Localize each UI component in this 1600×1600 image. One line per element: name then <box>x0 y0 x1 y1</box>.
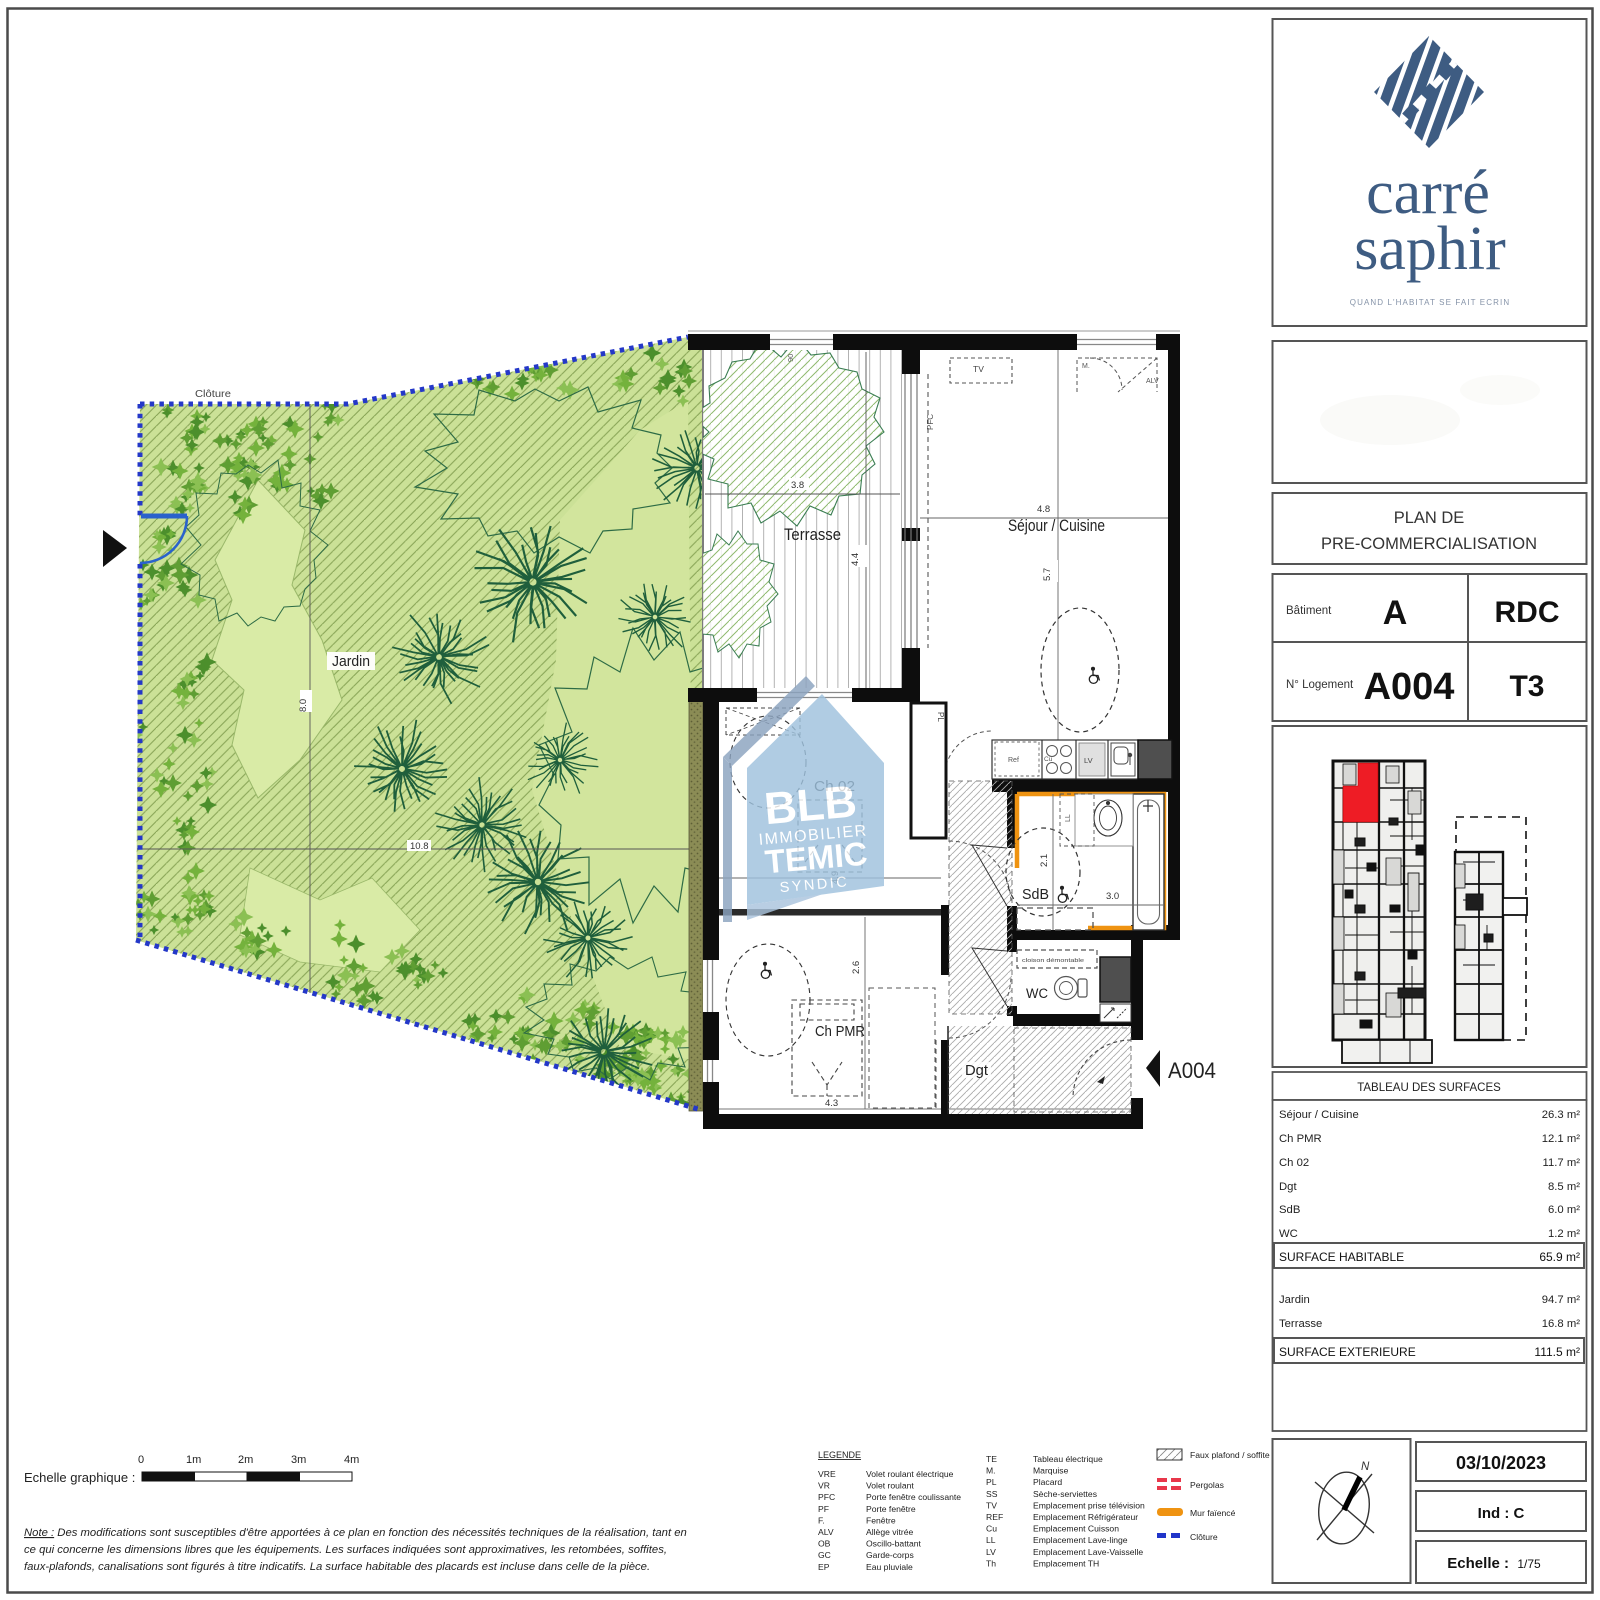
svg-text:4.3: 4.3 <box>825 1098 838 1109</box>
svg-text:8.0: 8.0 <box>298 699 309 712</box>
svg-text:4m: 4m <box>344 1454 359 1466</box>
svg-text:A004: A004 <box>1168 1058 1216 1083</box>
svg-text:saphir: saphir <box>1354 215 1506 283</box>
svg-text:cloison démontable: cloison démontable <box>1022 958 1084 964</box>
svg-text:6.0 m²: 6.0 m² <box>1548 1204 1580 1216</box>
svg-text:Dgt: Dgt <box>1279 1181 1297 1193</box>
svg-text:faux-plafonds, canalisations s: faux-plafonds, canalisations sont figuré… <box>24 1561 650 1573</box>
svg-text:Allège vitrée: Allège vitrée <box>866 1527 914 1537</box>
svg-text:Placard: Placard <box>1033 1477 1062 1487</box>
svg-text:4.4: 4.4 <box>850 553 861 566</box>
svg-text:Note : Des modifications sont: Note : Des modifications sont susceptibl… <box>24 1527 687 1539</box>
svg-text:Terrasse: Terrasse <box>784 525 841 544</box>
svg-text:Jardin: Jardin <box>332 654 370 670</box>
svg-text:A: A <box>1383 594 1408 632</box>
svg-text:12.1 m²: 12.1 m² <box>1542 1133 1581 1145</box>
svg-text:Emplacement TH: Emplacement TH <box>1033 1558 1099 1568</box>
svg-text:Fenêtre: Fenêtre <box>866 1515 896 1525</box>
svg-text:LEGENDE: LEGENDE <box>818 1450 861 1460</box>
svg-text:16.8 m²: 16.8 m² <box>1542 1318 1581 1330</box>
svg-text:1m: 1m <box>186 1454 201 1466</box>
svg-text:90: 90 <box>786 354 795 362</box>
svg-text:PF: PF <box>818 1504 829 1514</box>
svg-text:2.1: 2.1 <box>1039 854 1050 867</box>
svg-text:Emplacement prise télévision: Emplacement prise télévision <box>1033 1500 1145 1510</box>
svg-text:OB: OB <box>818 1539 831 1549</box>
svg-text:Ind : C: Ind : C <box>1478 1505 1525 1522</box>
svg-text:LV: LV <box>986 1547 996 1557</box>
svg-text:Clôture: Clôture <box>195 388 231 400</box>
svg-text:Emplacement Réfrigérateur: Emplacement Réfrigérateur <box>1033 1512 1138 1522</box>
svg-text:0: 0 <box>138 1454 144 1466</box>
svg-text:WC: WC <box>1279 1228 1298 1240</box>
svg-text:PRE-COMMERCIALISATION: PRE-COMMERCIALISATION <box>1321 535 1537 553</box>
svg-text:F.: F. <box>818 1515 825 1525</box>
svg-text:Garde-corps: Garde-corps <box>866 1550 914 1560</box>
svg-text:Séjour / Cuisine: Séjour / Cuisine <box>1279 1109 1359 1121</box>
svg-text:ce qui concerne les dimensions: ce qui concerne les dimensions libres qu… <box>24 1544 667 1556</box>
svg-text:111.5 m²: 111.5 m² <box>1534 1345 1580 1359</box>
svg-text:Porte fenêtre: Porte fenêtre <box>866 1504 916 1514</box>
svg-text:Th: Th <box>986 1558 996 1568</box>
svg-text:Mur faïencé: Mur faïencé <box>1190 1508 1236 1518</box>
svg-text:SdB: SdB <box>1022 887 1049 903</box>
svg-text:SURFACE EXTERIEURE: SURFACE EXTERIEURE <box>1279 1345 1416 1359</box>
svg-text:Emplacement Lave-linge: Emplacement Lave-linge <box>1033 1535 1128 1545</box>
svg-text:Ch 02: Ch 02 <box>1279 1157 1309 1169</box>
svg-text:11.7 m²: 11.7 m² <box>1543 1157 1581 1169</box>
svg-text:Sèche-serviettes: Sèche-serviettes <box>1033 1489 1097 1499</box>
svg-text:TABLEAU DES SURFACES: TABLEAU DES SURFACES <box>1357 1082 1501 1094</box>
svg-text:Echelle : 1/75: Echelle : 1/75 <box>1447 1555 1541 1572</box>
svg-text:LL: LL <box>986 1535 996 1545</box>
svg-text:Cu: Cu <box>1044 756 1053 763</box>
svg-text:Emplacement Lave-Vaisselle: Emplacement Lave-Vaisselle <box>1033 1547 1143 1557</box>
svg-text:WC: WC <box>1026 986 1048 1001</box>
svg-text:T3: T3 <box>1509 670 1544 703</box>
svg-text:5.7: 5.7 <box>1042 568 1053 581</box>
svg-text:94.7 m²: 94.7 m² <box>1542 1294 1581 1306</box>
svg-text:QUAND L'HABITAT SE FAIT ECRIN: QUAND L'HABITAT SE FAIT ECRIN <box>1350 298 1510 307</box>
svg-text:8.5 m²: 8.5 m² <box>1548 1181 1580 1193</box>
svg-text:SS: SS <box>986 1489 998 1499</box>
svg-text:M.: M. <box>1082 363 1090 370</box>
svg-text:VRE: VRE <box>818 1469 836 1479</box>
svg-text:1.2 m²: 1.2 m² <box>1548 1228 1580 1240</box>
svg-text:Bâtiment: Bâtiment <box>1286 605 1332 617</box>
svg-text:2m: 2m <box>238 1454 253 1466</box>
svg-text:PFC: PFC <box>818 1492 835 1502</box>
svg-text:LL: LL <box>1065 814 1072 822</box>
svg-text:Emplacement Cuisson: Emplacement Cuisson <box>1033 1524 1119 1534</box>
svg-text:Terrasse: Terrasse <box>1279 1318 1322 1330</box>
svg-text:Ch PMR: Ch PMR <box>815 1023 865 1040</box>
svg-text:26.3 m²: 26.3 m² <box>1542 1109 1581 1121</box>
svg-text:3m: 3m <box>291 1454 306 1466</box>
svg-text:Cu: Cu <box>986 1524 997 1534</box>
svg-text:10.8: 10.8 <box>410 841 429 852</box>
svg-text:Clôture: Clôture <box>1190 1532 1218 1542</box>
svg-text:Echelle graphique :: Echelle graphique : <box>24 1470 135 1485</box>
svg-text:PFC: PFC <box>926 414 935 430</box>
svg-text:VR: VR <box>818 1481 830 1491</box>
svg-text:Oscillo-battant: Oscillo-battant <box>866 1539 922 1549</box>
svg-text:GC: GC <box>818 1550 831 1560</box>
svg-text:Pergolas: Pergolas <box>1190 1480 1224 1490</box>
svg-text:3.0: 3.0 <box>1106 891 1119 902</box>
svg-text:65.9 m²: 65.9 m² <box>1539 1250 1580 1264</box>
svg-text:Volet roulant électrique: Volet roulant électrique <box>866 1469 954 1479</box>
svg-text:N° Logement: N° Logement <box>1286 679 1354 691</box>
svg-text:M.: M. <box>986 1466 996 1476</box>
svg-text:Tableau électrique: Tableau électrique <box>1033 1454 1103 1464</box>
svg-text:03/10/2023: 03/10/2023 <box>1456 1453 1546 1473</box>
svg-text:Volet roulant: Volet roulant <box>866 1481 914 1491</box>
svg-text:4.8: 4.8 <box>1037 504 1050 515</box>
svg-text:Eau pluviale: Eau pluviale <box>866 1562 913 1572</box>
svg-text:Séjour / Cuisine: Séjour / Cuisine <box>1008 517 1105 535</box>
svg-text:Jardin: Jardin <box>1279 1294 1310 1306</box>
svg-text:A004: A004 <box>1364 666 1455 708</box>
svg-text:PL: PL <box>986 1477 997 1487</box>
svg-text:TV: TV <box>986 1500 997 1510</box>
svg-text:PLAN DE: PLAN DE <box>1394 509 1465 527</box>
svg-text:Marquise: Marquise <box>1033 1466 1069 1476</box>
svg-text:PL: PL <box>936 712 945 722</box>
svg-text:2.6: 2.6 <box>851 961 862 974</box>
svg-text:Ch PMR: Ch PMR <box>1279 1133 1322 1145</box>
svg-text:Dgt: Dgt <box>965 1063 988 1079</box>
svg-text:SdB: SdB <box>1279 1204 1300 1216</box>
svg-text:N: N <box>1361 1461 1370 1473</box>
svg-text:EP: EP <box>818 1562 830 1572</box>
svg-text:RDC: RDC <box>1495 596 1560 629</box>
svg-text:3.8: 3.8 <box>791 480 804 491</box>
svg-text:LV: LV <box>1084 756 1093 765</box>
svg-text:TV: TV <box>973 364 984 374</box>
svg-text:Ref: Ref <box>1008 757 1019 764</box>
svg-text:ALV: ALV <box>1146 378 1159 385</box>
svg-text:Faux plafond / soffite: Faux plafond / soffite <box>1190 1450 1270 1460</box>
svg-text:REF: REF <box>986 1512 1003 1522</box>
svg-text:SURFACE HABITABLE: SURFACE HABITABLE <box>1279 1250 1404 1264</box>
svg-text:ALV: ALV <box>818 1527 834 1537</box>
svg-text:Porte fenêtre coulissante: Porte fenêtre coulissante <box>866 1492 961 1502</box>
svg-text:TE: TE <box>986 1454 997 1464</box>
